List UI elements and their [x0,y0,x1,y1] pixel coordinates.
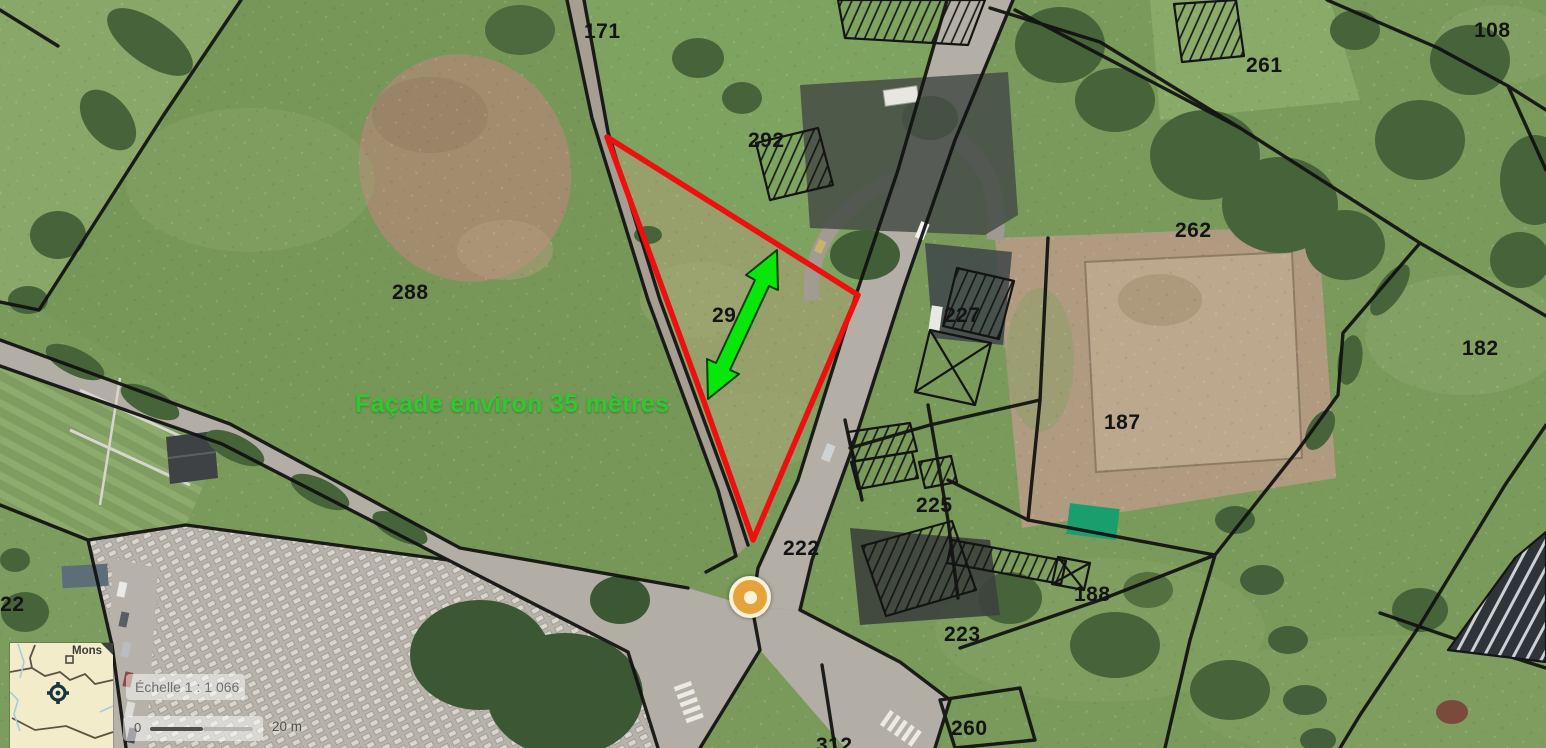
poi-marker[interactable] [729,576,771,618]
poi-marker-center-dot [744,591,757,604]
overview-map-canvas [10,643,113,748]
scalebar-min-label: 0 [134,720,141,735]
map-viewport[interactable]: 171 292 288 29 261 108 262 182 227 187 2… [0,0,1546,748]
aerial-map-canvas[interactable] [0,0,1546,748]
overview-place-label: Mons [72,645,102,657]
overview-collapse-button[interactable] [101,643,113,655]
scalebar-segment-dark [150,727,203,731]
city-square-marker [66,656,73,663]
overview-map[interactable]: Mons [10,643,113,748]
scalebar: 0 [123,716,263,741]
position-target-icon [47,682,69,704]
scale-ratio-indicator: Échelle 1 : 1 066 [126,674,245,700]
scalebar-max-label: 20 m [272,719,302,734]
scalebar-segment-light [203,727,253,731]
